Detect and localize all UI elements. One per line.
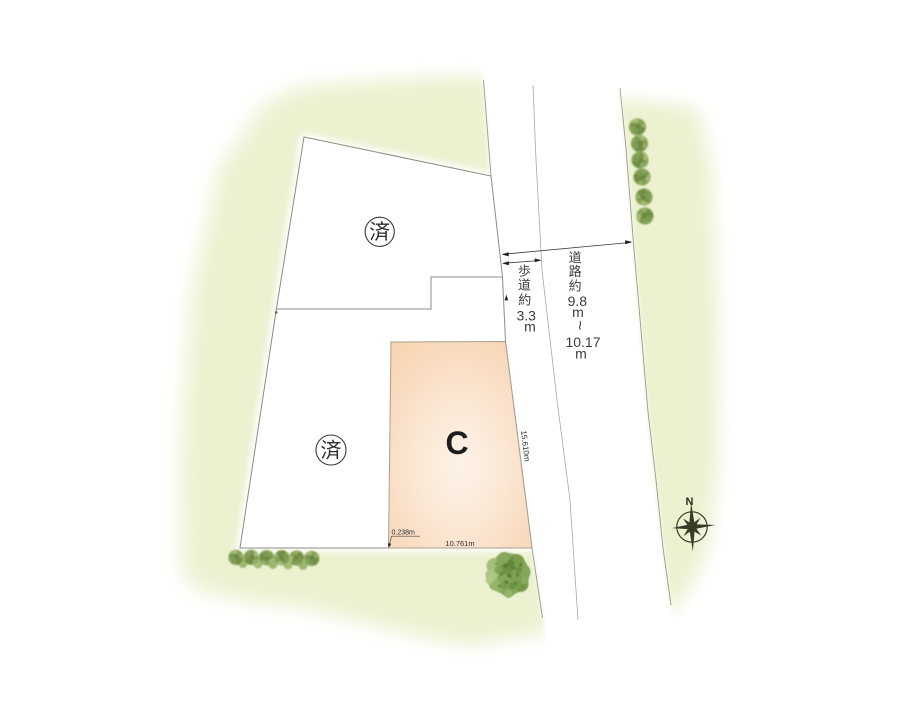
svg-text:m: m <box>524 318 536 334</box>
svg-text:m: m <box>572 304 584 320</box>
svg-text:路: 路 <box>569 264 582 279</box>
svg-text:歩: 歩 <box>518 263 531 278</box>
svg-text:約: 約 <box>569 279 582 294</box>
svg-text:道: 道 <box>569 250 582 265</box>
svg-text:済: 済 <box>369 221 390 244</box>
svg-text:道: 道 <box>518 277 531 292</box>
svg-text:C: C <box>445 425 468 461</box>
svg-text:~: ~ <box>570 320 589 330</box>
svg-text:10.761m: 10.761m <box>445 539 474 548</box>
svg-text:0.238m: 0.238m <box>392 530 416 537</box>
svg-text:m: m <box>575 346 587 362</box>
svg-text:N: N <box>686 496 694 508</box>
svg-text:済: 済 <box>321 440 342 463</box>
svg-text:約: 約 <box>518 293 531 308</box>
